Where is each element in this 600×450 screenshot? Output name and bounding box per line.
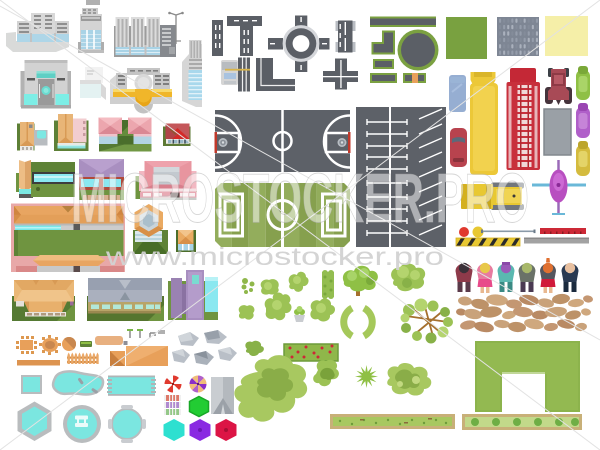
svg-text:www.microstocker.pro: www.microstocker.pro — [105, 243, 444, 271]
svg-text:MICROSTOCKER.PRO: MICROSTOCKER.PRO — [71, 159, 529, 237]
